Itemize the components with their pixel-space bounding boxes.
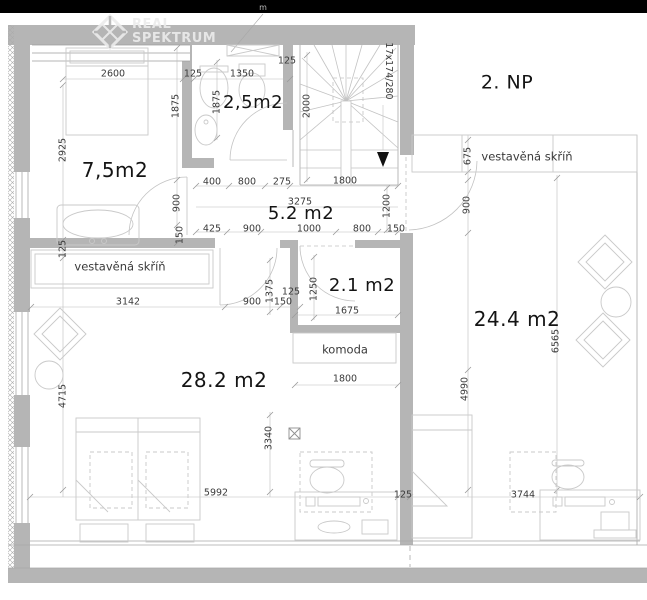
doors-layer	[129, 103, 477, 305]
symbol-box	[289, 428, 300, 439]
toilet	[239, 64, 265, 107]
bidet	[195, 115, 217, 145]
dresser	[293, 333, 396, 363]
furniture-layer	[31, 45, 640, 542]
floorplan-canvas: REAL SPEKTRUM 7,5m22,5m25.2 m22.1 m228.2…	[0, 0, 647, 600]
structure-lines	[8, 14, 647, 568]
single-bed	[412, 415, 472, 538]
sink	[200, 66, 228, 108]
armchair-right-2	[576, 313, 630, 367]
stairs-direction-arrow	[377, 152, 389, 167]
double-bed	[76, 418, 200, 542]
armchair-left	[34, 308, 86, 360]
side-table	[601, 287, 631, 317]
wardrobe-right	[412, 135, 637, 172]
top-bar	[0, 0, 647, 13]
radiator	[227, 45, 279, 56]
armchair-right-1	[578, 235, 632, 289]
floorplan-drawing	[0, 0, 647, 600]
desk-left	[295, 452, 397, 540]
plant	[35, 361, 63, 389]
wardrobe-left	[31, 250, 213, 288]
desk-right	[510, 452, 640, 540]
walls-layer	[8, 25, 647, 583]
staircase	[300, 45, 398, 185]
